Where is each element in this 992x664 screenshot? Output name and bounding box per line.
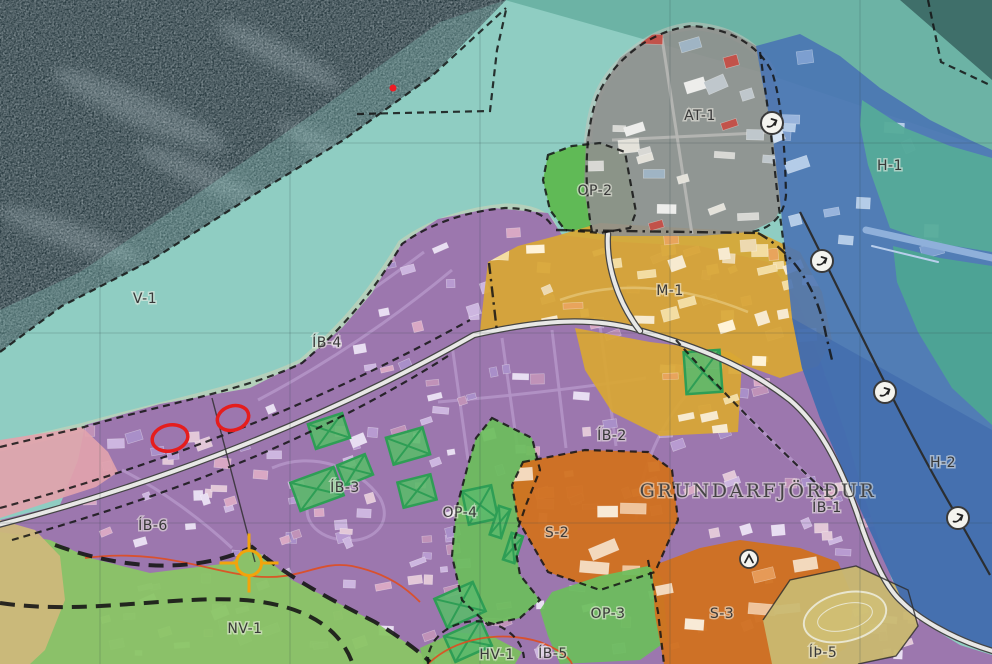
zone-label-ib6: ÍB-6 <box>138 517 168 534</box>
direction-arrow-marker <box>947 507 969 529</box>
zone-label-s3: S-3 <box>710 606 734 622</box>
zone-label-hv1: HV-1 <box>479 647 514 663</box>
zone-label-ith5: ÍÞ-5 <box>809 644 838 661</box>
zone-label-h2: H-2 <box>930 455 956 471</box>
zone-label-s2: S-2 <box>545 525 569 541</box>
zone-label-nv1: NV-1 <box>227 621 262 637</box>
red-annotation-dot <box>390 85 397 92</box>
chevron-up-marker <box>740 550 758 568</box>
zone-label-op3: OP-3 <box>590 606 625 622</box>
map-canvas[interactable]: V-1ÍB-4ÍB-6ÍB-3ÍB-2ÍB-1GRUNDARFJÖRÐURM-1… <box>0 0 992 664</box>
direction-arrow-marker <box>874 381 896 403</box>
zone-label-at1: AT-1 <box>684 108 716 124</box>
zone-label-ib4: ÍB-4 <box>312 334 342 351</box>
zone-label-ib5: ÍB-5 <box>538 645 568 662</box>
direction-arrow-marker <box>761 112 783 134</box>
zone-label-m1: M-1 <box>656 283 684 299</box>
town-label: GRUNDARFJÖRÐUR <box>640 479 877 502</box>
zone-label-op4: OP-4 <box>442 505 477 521</box>
map-viewport[interactable]: V-1ÍB-4ÍB-6ÍB-3ÍB-2ÍB-1GRUNDARFJÖRÐURM-1… <box>0 0 992 664</box>
zone-label-v1: V-1 <box>133 291 157 307</box>
direction-arrow-marker <box>811 250 833 272</box>
zone-label-ib3: ÍB-3 <box>330 479 360 496</box>
zone-label-h1: H-1 <box>877 158 903 174</box>
zone-label-ib2: ÍB-2 <box>597 427 627 444</box>
zone-label-op2: OP-2 <box>577 183 612 199</box>
